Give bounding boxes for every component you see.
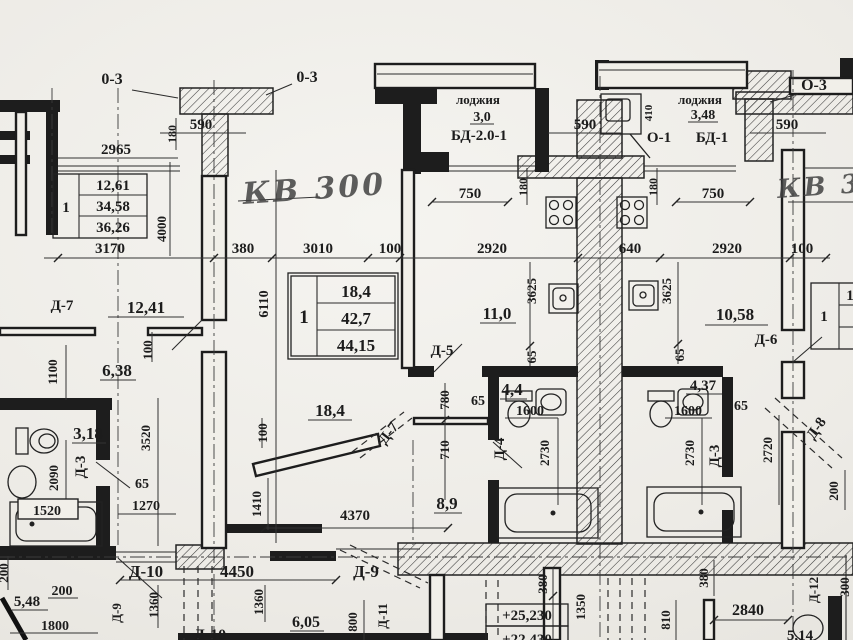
dim-180-right: 180: [646, 178, 660, 196]
apartment-table-right-partial: 1 1: [811, 283, 853, 349]
dim-380-b2: 380: [696, 568, 711, 588]
dim-65-v1: 65: [524, 350, 539, 364]
loggia-right-axis: О-1: [647, 130, 671, 146]
washbasin-left-bath: [8, 466, 36, 498]
door-mark-d10-bottom: Д-10: [194, 627, 226, 640]
dim-3010: 3010: [303, 241, 333, 257]
elevation-lower: +22,430: [502, 632, 552, 640]
dim-410: 410: [643, 104, 655, 121]
dim-3520: 3520: [138, 425, 153, 451]
dim-4370: 4370: [340, 508, 370, 524]
dim-1600-left: 1600: [516, 404, 544, 419]
apartment-number-left: КВ 300: [240, 167, 387, 212]
dim-640: 640: [619, 241, 642, 257]
dim-1350: 1350: [573, 594, 588, 620]
room-area-3-18: 3,18: [73, 424, 103, 443]
loggia-right-door: БД-1: [696, 130, 728, 146]
dim-3625-right: 3625: [659, 278, 674, 305]
dim-65-b: 65: [471, 394, 485, 409]
dim-590-center: 590: [574, 117, 597, 133]
dim-1410: 1410: [249, 491, 264, 517]
door-mark-d6: Д-6: [755, 332, 778, 348]
dim-4000: 4000: [154, 216, 169, 242]
table-left-row1: 12,61: [96, 178, 130, 194]
dim-780: 780: [437, 390, 452, 410]
apartment-table-center: 1 18,4 42,7 44,15: [288, 273, 398, 359]
dim-750-left: 750: [459, 186, 482, 202]
door-mark-d7-left: Д-7: [51, 298, 74, 314]
loggia-center-door: БД-2.0-1: [451, 128, 507, 144]
loggia-center-name: лоджия: [456, 92, 500, 107]
dim-1100: 1100: [45, 359, 60, 384]
dim-100-top-left: 100: [379, 241, 402, 257]
loggia-right-area: 3,48: [691, 108, 716, 123]
dim-2920-right: 2920: [712, 241, 742, 257]
room-area-5-48: 5,48: [14, 594, 40, 610]
floorplan-drawing: 1 12,61 34,58 36,26 1 18,4 42,7 44,15 1 …: [0, 0, 853, 640]
loggia-right-name: лоджия: [678, 92, 722, 107]
dim-1800: 1800: [41, 619, 69, 634]
table-center-row1: 18,4: [341, 282, 371, 301]
elevation-upper: +25,230: [502, 608, 552, 624]
axis-label-center: 0-3: [296, 69, 317, 86]
room-area-11-0: 11,0: [483, 304, 512, 323]
dim-180-left: 180: [165, 125, 179, 143]
apartment-number-right: КВ 3: [775, 169, 853, 205]
table-left-row3: 36,26: [96, 220, 130, 236]
door-mark-d8: Д-8: [804, 415, 830, 443]
door-mark-d9-vert: Д-9: [109, 603, 124, 623]
dim-2840: 2840: [732, 602, 764, 619]
dim-800: 800: [345, 612, 360, 632]
dim-750-right: 750: [702, 186, 725, 202]
room-area-4-4: 4,4: [501, 380, 523, 399]
table-left-row2: 34,58: [96, 199, 130, 215]
dim-590-left: 590: [190, 117, 213, 133]
sink-mid-right: [629, 281, 658, 310]
room-area-6-05: 6,05: [292, 614, 320, 631]
door-mark-d3-right: Д-3: [707, 445, 723, 468]
dim-1360-a: 1360: [146, 592, 161, 618]
table-center-row3: 44,15: [337, 336, 375, 355]
sink-mid-left: [549, 284, 578, 313]
dim-300-right: 300: [837, 577, 852, 597]
table-right-col: 1: [820, 309, 828, 325]
door-mark-d10: Д-10: [129, 562, 163, 581]
dim-6110: 6110: [257, 290, 272, 317]
loggia-center-area: 3,0: [473, 110, 491, 125]
dim-1600-right: 1600: [674, 404, 702, 419]
apartment-table-left: 1 12,61 34,58 36,26: [53, 174, 147, 238]
room-area-10-58: 10,58: [716, 305, 754, 324]
table-center-col: 1: [299, 307, 309, 328]
room-area-6-38: 6,38: [102, 361, 132, 380]
dim-65-v2: 65: [672, 348, 687, 362]
toilet-right: [648, 391, 674, 427]
dim-2965: 2965: [101, 142, 131, 158]
door-mark-d9: Д-9: [353, 562, 379, 581]
door-mark-d11: Д-11: [375, 603, 390, 629]
room-area-5-14: 5,14: [787, 628, 814, 640]
dim-1270: 1270: [132, 499, 160, 514]
dim-2720: 2720: [760, 437, 775, 463]
dim-65-c: 65: [734, 399, 748, 414]
dim-380-top: 380: [232, 241, 255, 257]
table-left-col: 1: [62, 200, 70, 216]
dim-590-right: 590: [776, 117, 799, 133]
room-area-8-9: 8,9: [436, 494, 457, 513]
dim-1360-b: 1360: [251, 589, 266, 615]
room-area-12-41: 12,41: [127, 298, 165, 317]
door-mark-d3-left: Д-3: [73, 456, 89, 479]
dim-4450: 4450: [220, 562, 254, 581]
door-mark-d5: Д-5: [431, 343, 454, 359]
room-area-18-4: 18,4: [315, 401, 345, 420]
axis-label-right: О-3: [801, 77, 827, 94]
toilet-left-bath: [16, 428, 58, 454]
dim-2090: 2090: [46, 465, 61, 491]
dim-3625-left: 3625: [524, 278, 539, 305]
dim-200-bl-vert: 200: [0, 563, 11, 583]
table-right-partial: 1: [846, 288, 853, 304]
dim-180-center: 180: [516, 178, 530, 196]
dim-65-a: 65: [135, 477, 149, 492]
table-center-row2: 42,7: [341, 309, 371, 328]
dim-100-top-right: 100: [791, 241, 814, 257]
dim-200-right: 200: [826, 481, 841, 501]
dim-100-v2: 100: [255, 423, 270, 443]
door-mark-d12: Д-12: [806, 577, 821, 603]
dim-2730-left: 2730: [537, 440, 552, 466]
dim-2920-left: 2920: [477, 241, 507, 257]
room-area-4-37: 4,37: [690, 378, 717, 394]
dim-2730-right: 2730: [682, 440, 697, 466]
floorplan-photo: 1 12,61 34,58 36,26 1 18,4 42,7 44,15 1 …: [0, 0, 853, 640]
axis-label-left: 0-3: [101, 71, 122, 88]
dim-200-bl: 200: [52, 584, 73, 599]
dim-380-b1: 380: [535, 574, 550, 594]
door-mark-d4: Д-4: [492, 437, 508, 460]
dim-710: 710: [437, 440, 452, 460]
dim-1520: 1520: [33, 504, 61, 519]
dim-100-v1: 100: [140, 340, 155, 360]
stove-left: [546, 197, 576, 228]
dim-810: 810: [658, 610, 673, 630]
dim-3170: 3170: [95, 241, 125, 257]
